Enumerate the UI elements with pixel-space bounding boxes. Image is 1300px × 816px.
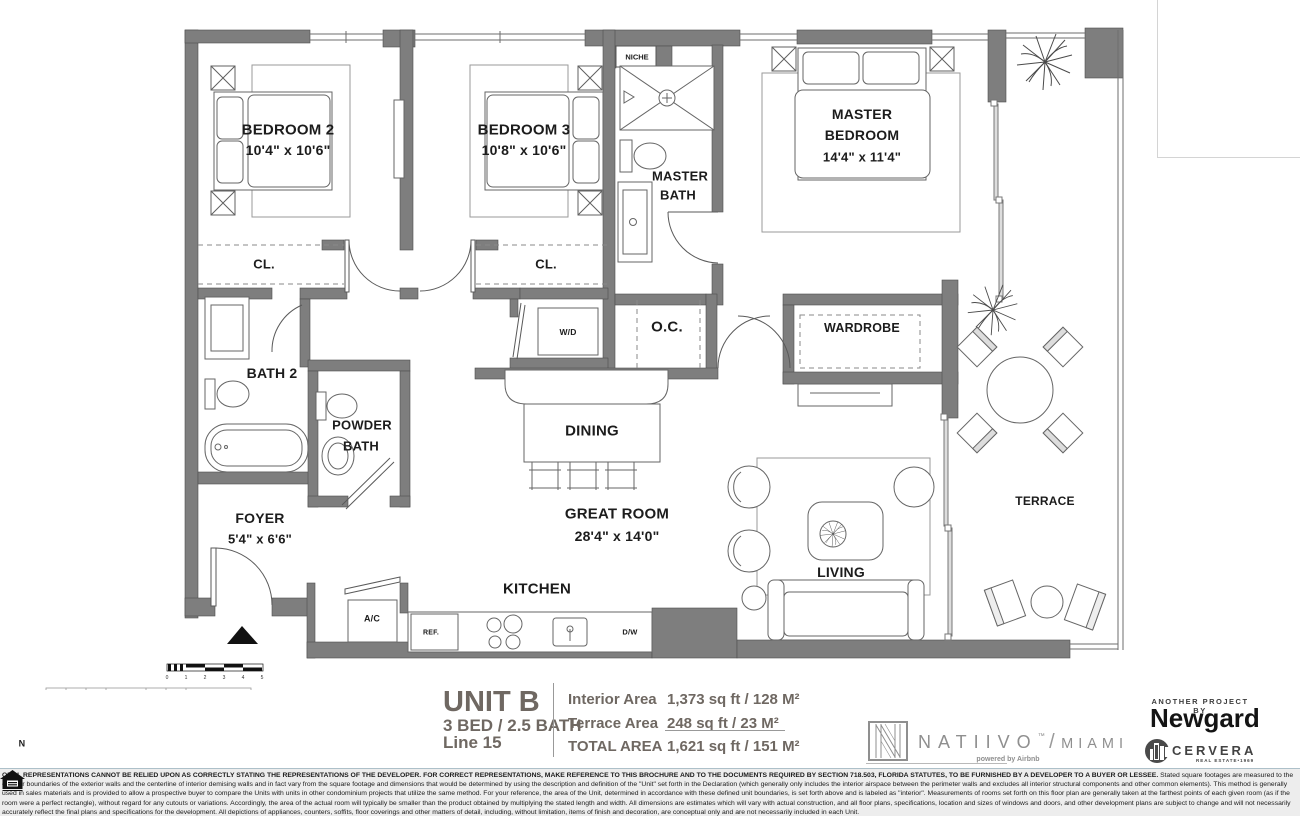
svg-text:2: 2 bbox=[204, 675, 207, 681]
washer-dryer-label: W/D bbox=[559, 328, 576, 337]
bedroom2-furniture bbox=[211, 65, 350, 217]
powered-by-airbnb: powered by Airbnb bbox=[968, 756, 1048, 763]
ref-label: REF. bbox=[423, 630, 439, 637]
master-bedroom-label-1: MASTER bbox=[832, 107, 892, 121]
total-area-value: 1,621 sq ft / 151 M² bbox=[667, 738, 800, 755]
bath2-fixtures bbox=[205, 297, 308, 472]
dw-label: D/W bbox=[622, 628, 637, 636]
master-bath-label-1: MASTER bbox=[652, 170, 708, 183]
bedroom3-label: BEDROOM 3 bbox=[478, 123, 571, 138]
scale-bar: 0 1 2 3 4 5 bbox=[166, 664, 264, 681]
area-table-rule bbox=[665, 730, 785, 731]
terrace-plants bbox=[968, 34, 1072, 335]
kitchen-label: KITCHEN bbox=[503, 582, 571, 597]
compass-north-label: N bbox=[19, 740, 26, 749]
wardrobe-label: WARDROBE bbox=[824, 322, 900, 335]
bedroom3-furniture bbox=[394, 65, 603, 217]
svg-text:1: 1 bbox=[185, 675, 188, 681]
interior-area-label: Interior Area bbox=[568, 691, 657, 708]
powder-bath-label-1: POWDER bbox=[332, 419, 392, 432]
master-bath-fixtures bbox=[618, 66, 714, 262]
niche-label: NICHE bbox=[625, 53, 648, 61]
powder-fixtures bbox=[316, 392, 357, 475]
key-plan bbox=[46, 688, 251, 690]
unit-line: Line 15 bbox=[443, 733, 502, 753]
master-bedroom-dims: 14'4" x 11'4" bbox=[823, 151, 901, 164]
owners-closet-label: O.C. bbox=[651, 320, 683, 335]
unit-name: UNIT B bbox=[443, 686, 540, 719]
trademark-symbol: ™ bbox=[1038, 733, 1045, 740]
closet3-label: CL. bbox=[535, 258, 557, 271]
powder-bath-label-2: BATH bbox=[343, 440, 379, 453]
great-room-dims: 28'4" x 14'0" bbox=[575, 529, 660, 543]
bedroom2-dims: 10'4" x 10'6" bbox=[246, 143, 331, 157]
footer-divider bbox=[553, 683, 554, 757]
master-bath-label-2: BATH bbox=[660, 189, 696, 202]
master-bedroom-label-2: BEDROOM bbox=[825, 128, 900, 142]
equal-housing-icon bbox=[0, 770, 25, 792]
living-furniture bbox=[728, 458, 934, 640]
foyer-label: FOYER bbox=[235, 511, 284, 525]
interior-area-value: 1,373 sq ft / 128 M² bbox=[667, 691, 800, 708]
natiivo-wordmark: NATIIVO™ / MIAMI bbox=[918, 731, 1128, 754]
cervera-subtitle: REAL ESTATE•1969 bbox=[1196, 758, 1254, 763]
bedroom2-label: BEDROOM 2 bbox=[242, 123, 335, 138]
kitchen-counter bbox=[408, 612, 652, 652]
svg-text:5: 5 bbox=[261, 675, 264, 681]
total-area-label: TOTAL AREA bbox=[568, 738, 662, 755]
disclaimer-line1: ORAL REPRESENTATIONS CANNOT BE RELIED UP… bbox=[2, 772, 1158, 779]
closet2-label: CL. bbox=[253, 258, 275, 271]
svg-text:0: 0 bbox=[166, 675, 169, 681]
terrace-area-label: Terrace Area bbox=[568, 715, 658, 732]
corner-white-panel bbox=[1157, 0, 1300, 158]
brand-separator: / bbox=[1049, 731, 1057, 753]
svg-text:4: 4 bbox=[242, 675, 245, 681]
floorplan-page: 0 1 2 3 4 5 BEDROOM 2 10'4" x 10'6" BEDR… bbox=[0, 0, 1300, 816]
newgard-logo: Newgard bbox=[1150, 703, 1250, 734]
terrace-label: TERRACE bbox=[1015, 495, 1074, 507]
bath2-label: BATH 2 bbox=[247, 366, 298, 380]
natiivo-logo-rule bbox=[866, 763, 1007, 764]
floor-plan-drawing: 0 1 2 3 4 5 bbox=[0, 0, 1300, 690]
great-room-label: GREAT ROOM bbox=[565, 507, 669, 522]
natiivo-name: NATIIVO bbox=[918, 732, 1038, 752]
cervera-logo-icon bbox=[1144, 737, 1171, 765]
natiivo-logo-icon bbox=[868, 721, 908, 761]
living-label: LIVING bbox=[817, 565, 865, 579]
entry-arrow bbox=[227, 626, 258, 644]
cervera-name: CERVERA bbox=[1172, 743, 1256, 758]
terrace-furniture bbox=[957, 327, 1105, 630]
doors bbox=[211, 212, 790, 606]
svg-text:3: 3 bbox=[223, 675, 226, 681]
ac-label: A/C bbox=[364, 615, 380, 624]
dining-label: DINING bbox=[565, 424, 619, 439]
foyer-dims: 5'4" x 6'6" bbox=[228, 533, 292, 546]
legal-disclaimer: ORAL REPRESENTATIONS CANNOT BE RELIED UP… bbox=[0, 768, 1300, 816]
bedroom3-dims: 10'8" x 10'6" bbox=[482, 143, 567, 157]
brand-city: MIAMI bbox=[1061, 736, 1128, 752]
